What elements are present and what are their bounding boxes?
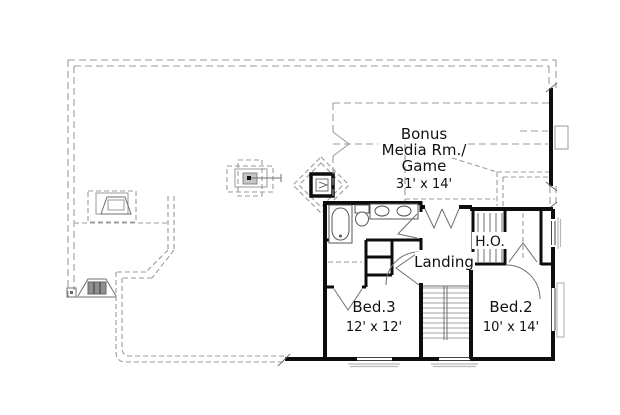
- bed2-dims: 10' x 14': [483, 320, 539, 335]
- bed3-dims: 12' x 12': [346, 320, 402, 335]
- stairs: [423, 286, 469, 340]
- bonus-right-wall: [546, 83, 568, 211]
- bath-fixtures: [329, 204, 418, 243]
- bonus-room-label-line3: Game: [402, 157, 447, 175]
- bonus-room-dims: 31' x 14': [396, 177, 452, 192]
- ho-label: H.O.: [475, 234, 505, 250]
- fireplace-below: [88, 191, 136, 222]
- ceiling-fixture-below: [227, 160, 281, 196]
- landing-label: Landing: [414, 253, 474, 271]
- floor-plan-drawing: Bonus Media Rm./ Game 31' x 14' H.O. Lan…: [0, 0, 620, 415]
- bed3-label: Bed.3: [352, 298, 395, 316]
- floor-plan-sheet: Bonus Media Rm./ Game 31' x 14' H.O. Lan…: [0, 0, 620, 415]
- bed2-label: Bed.2: [489, 298, 532, 316]
